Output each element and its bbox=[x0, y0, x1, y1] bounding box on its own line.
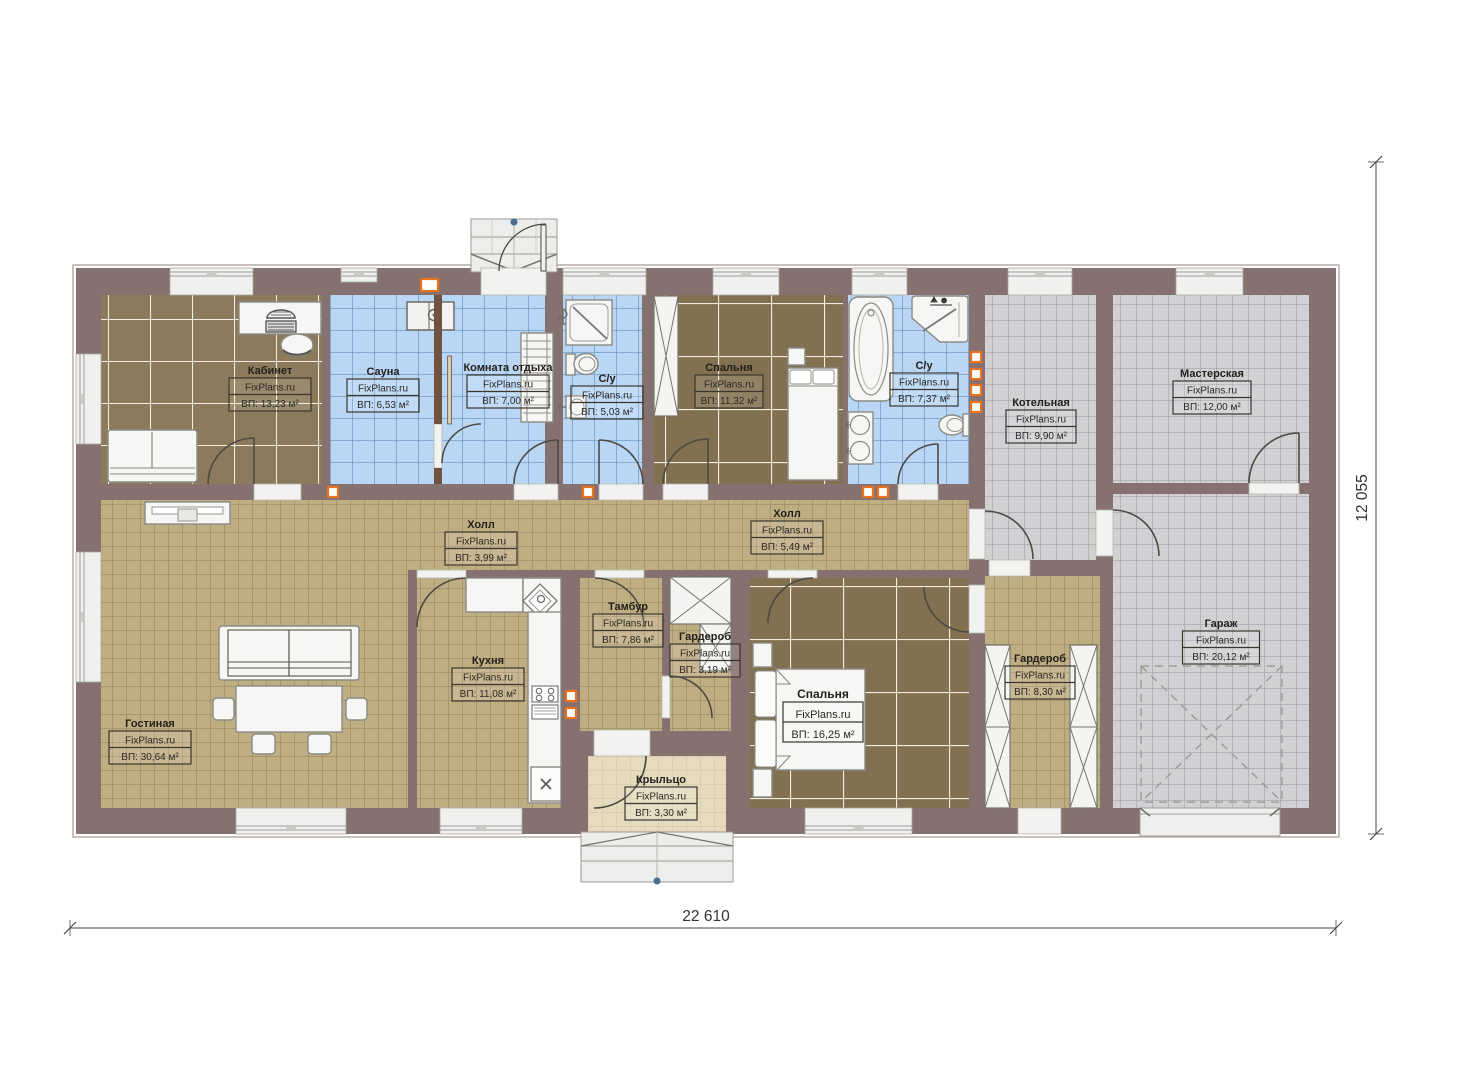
svg-text:Спальня: Спальня bbox=[705, 362, 753, 374]
svg-text:Комната отдыха: Комната отдыха bbox=[463, 362, 553, 374]
svg-text:Гараж: Гараж bbox=[1205, 618, 1238, 630]
svg-text:С/у: С/у bbox=[915, 360, 933, 372]
svg-text:ВП: 11,32 м²: ВП: 11,32 м² bbox=[701, 396, 758, 407]
svg-text:FixPlans.ru: FixPlans.ru bbox=[582, 391, 632, 402]
svg-text:ВП: 20,12 м²: ВП: 20,12 м² bbox=[1192, 652, 1250, 663]
svg-text:ВП: 6,53 м²: ВП: 6,53 м² bbox=[357, 400, 410, 411]
svg-text:Мастерская: Мастерская bbox=[1180, 368, 1244, 380]
svg-text:ВП: 3,30 м²: ВП: 3,30 м² bbox=[635, 808, 688, 819]
svg-text:ВП: 13,23 м²: ВП: 13,23 м² bbox=[241, 399, 299, 410]
svg-text:FixPlans.ru: FixPlans.ru bbox=[245, 383, 295, 394]
svg-text:ВП: 7,37 м²: ВП: 7,37 м² bbox=[898, 394, 951, 405]
svg-text:FixPlans.ru: FixPlans.ru bbox=[463, 673, 513, 684]
svg-text:Кабинет: Кабинет bbox=[248, 365, 293, 377]
svg-text:FixPlans.ru: FixPlans.ru bbox=[762, 526, 812, 537]
svg-text:Гостиная: Гостиная bbox=[125, 718, 175, 730]
svg-text:Сауна: Сауна bbox=[366, 366, 400, 378]
svg-text:ВП: 8,30 м²: ВП: 8,30 м² bbox=[1014, 687, 1067, 698]
svg-text:Крыльцо: Крыльцо bbox=[636, 774, 686, 786]
svg-text:ВП: 16,25 м²: ВП: 16,25 м² bbox=[791, 729, 855, 741]
svg-text:ВП: 5,49 м²: ВП: 5,49 м² bbox=[761, 542, 814, 553]
svg-text:FixPlans.ru: FixPlans.ru bbox=[1016, 415, 1066, 426]
svg-text:ВП: 12,00 м²: ВП: 12,00 м² bbox=[1183, 402, 1241, 413]
svg-text:Котельная: Котельная bbox=[1012, 397, 1070, 409]
svg-text:Спальня: Спальня bbox=[797, 687, 849, 701]
svg-text:FixPlans.ru: FixPlans.ru bbox=[603, 619, 653, 630]
svg-text:FixPlans.ru: FixPlans.ru bbox=[483, 380, 533, 391]
svg-text:Тамбур: Тамбур bbox=[608, 601, 648, 613]
svg-text:FixPlans.ru: FixPlans.ru bbox=[704, 380, 754, 391]
svg-text:FixPlans.ru: FixPlans.ru bbox=[1015, 671, 1065, 682]
svg-text:Гардероб: Гардероб bbox=[679, 631, 731, 643]
svg-text:Холл: Холл bbox=[773, 508, 801, 520]
svg-text:Кухня: Кухня bbox=[472, 655, 504, 667]
svg-text:ВП: 9,90 м²: ВП: 9,90 м² bbox=[1015, 431, 1068, 442]
svg-text:FixPlans.ru: FixPlans.ru bbox=[358, 384, 408, 395]
svg-text:FixPlans.ru: FixPlans.ru bbox=[795, 709, 850, 721]
svg-text:ВП: 3,99 м²: ВП: 3,99 м² bbox=[455, 553, 508, 564]
svg-text:22 610: 22 610 bbox=[682, 908, 730, 925]
svg-text:Гардероб: Гардероб bbox=[1014, 653, 1066, 665]
svg-text:FixPlans.ru: FixPlans.ru bbox=[636, 792, 686, 803]
svg-text:ВП: 30,64 м²: ВП: 30,64 м² bbox=[121, 752, 179, 763]
svg-text:ВП: 3,19 м²: ВП: 3,19 м² bbox=[679, 665, 732, 676]
svg-text:ВП: 7,86 м²: ВП: 7,86 м² bbox=[602, 635, 655, 646]
svg-text:FixPlans.ru: FixPlans.ru bbox=[1196, 636, 1246, 647]
svg-text:С/у: С/у bbox=[598, 373, 616, 385]
svg-text:ВП: 7,00 м²: ВП: 7,00 м² bbox=[482, 396, 535, 407]
svg-text:FixPlans.ru: FixPlans.ru bbox=[899, 378, 949, 389]
svg-text:ВП: 11,08 м²: ВП: 11,08 м² bbox=[460, 689, 517, 700]
svg-text:FixPlans.ru: FixPlans.ru bbox=[456, 537, 506, 548]
svg-text:ВП: 5,03 м²: ВП: 5,03 м² bbox=[581, 407, 634, 418]
svg-text:12 055: 12 055 bbox=[1354, 474, 1371, 521]
svg-text:FixPlans.ru: FixPlans.ru bbox=[125, 736, 175, 747]
svg-text:FixPlans.ru: FixPlans.ru bbox=[680, 649, 730, 660]
svg-text:FixPlans.ru: FixPlans.ru bbox=[1187, 386, 1237, 397]
svg-text:Холл: Холл bbox=[467, 519, 495, 531]
